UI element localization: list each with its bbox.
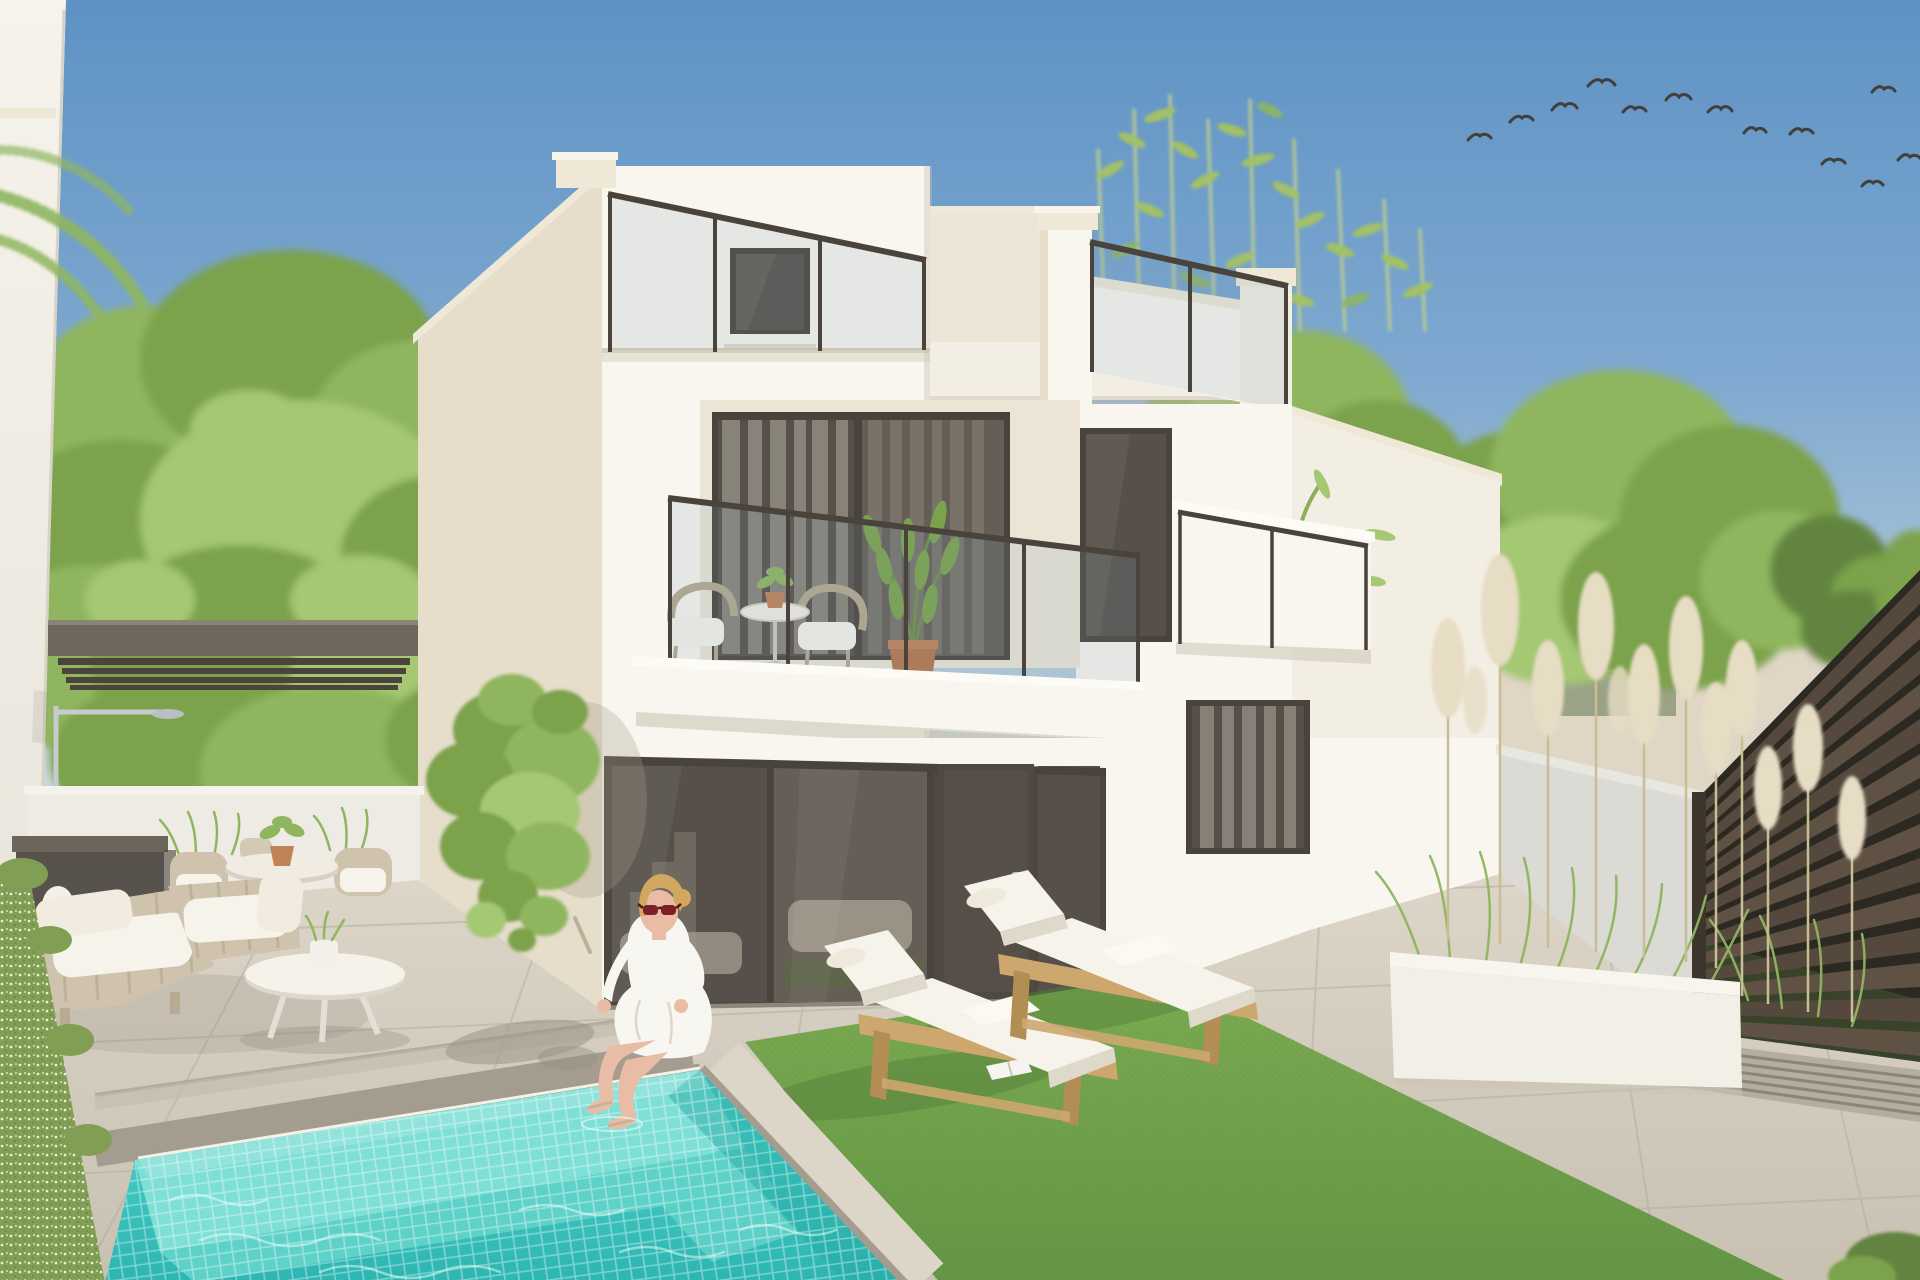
villa-exterior-render (0, 0, 1920, 1280)
scene-svg (0, 0, 1920, 1280)
first-floor-balcony (632, 400, 1143, 756)
shower-head (152, 709, 184, 719)
pergola (48, 620, 418, 690)
coffee-table-pot (310, 940, 338, 966)
table-plant-pot (270, 846, 294, 866)
ground-floor-window-right (1186, 700, 1310, 854)
